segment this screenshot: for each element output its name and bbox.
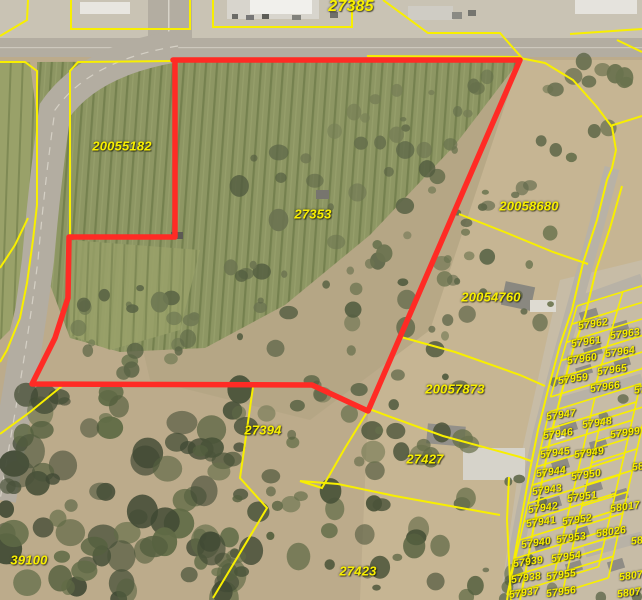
parcel-line-lot-27427-north bbox=[369, 409, 531, 461]
parcel-line-west-zigzag bbox=[213, 387, 267, 598]
parcel-line-top-road-overlap bbox=[367, 56, 520, 57]
lot-line bbox=[577, 278, 642, 306]
lot-line bbox=[563, 578, 609, 592]
lot-line bbox=[596, 292, 623, 383]
parcel-line-top-lot-3 bbox=[383, 0, 522, 58]
parcel-line-div-20058680-20054760 bbox=[459, 214, 588, 264]
parcel-line-road-west-edge bbox=[0, 218, 28, 268]
parcel-line-topleft-corner bbox=[0, 0, 28, 36]
lot-line bbox=[591, 449, 637, 463]
parcel-line-div-20054760-20057873 bbox=[401, 337, 545, 386]
lot-line bbox=[601, 406, 642, 420]
residential-lot-lines bbox=[507, 278, 642, 595]
parcel-line-ne-spur bbox=[610, 116, 642, 126]
parcel-boundary-lines bbox=[0, 0, 642, 600]
parcel-line-top-lot-2 bbox=[213, 0, 352, 27]
selected-parcel-boundary bbox=[32, 60, 520, 411]
parcel-line-lot-27427-west-south bbox=[300, 409, 500, 515]
lot-line bbox=[572, 535, 618, 549]
parcel-line-field-west-edge bbox=[70, 61, 173, 237]
parcel-line-street-west-edge bbox=[507, 58, 616, 600]
parcel-line-row-line-510 bbox=[507, 477, 511, 600]
parcel-line-top-right-1 bbox=[570, 29, 642, 34]
lot-line bbox=[572, 296, 642, 324]
parcel-line-layer bbox=[0, 0, 642, 600]
parcel-line-road-east-edge bbox=[0, 62, 37, 362]
lot-line bbox=[587, 470, 633, 484]
parcel-line-top-right-2 bbox=[617, 40, 642, 52]
map-canvas[interactable]: 2738520055182273532005868020054760200578… bbox=[0, 0, 642, 600]
parcel-line-top-lot-1 bbox=[71, 0, 190, 29]
lot-line bbox=[582, 492, 628, 506]
parcel-line-div-39100-road bbox=[0, 386, 62, 434]
